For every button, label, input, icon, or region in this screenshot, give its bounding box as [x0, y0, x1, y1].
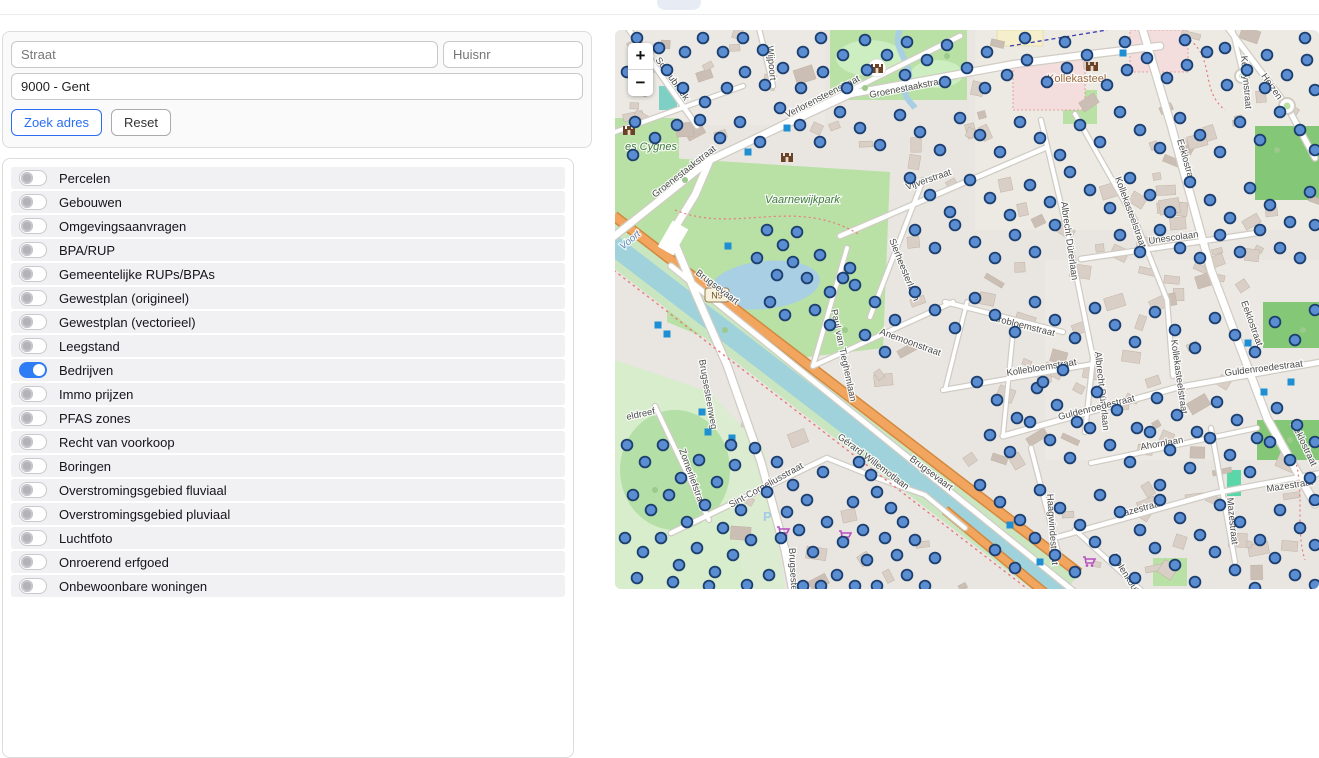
company-marker[interactable] [1245, 183, 1256, 194]
company-marker[interactable] [662, 65, 673, 76]
company-marker[interactable] [1275, 243, 1286, 254]
company-marker[interactable] [1295, 523, 1306, 534]
layer-toggle-percelen[interactable] [19, 170, 47, 186]
company-marker[interactable] [1285, 217, 1296, 228]
company-marker[interactable] [776, 533, 787, 544]
company-marker[interactable] [910, 287, 921, 298]
company-marker[interactable] [930, 243, 941, 254]
company-marker[interactable] [930, 553, 941, 564]
company-marker[interactable] [1050, 220, 1061, 231]
company-marker[interactable] [668, 577, 679, 588]
company-marker[interactable] [1070, 567, 1081, 578]
company-marker[interactable] [1142, 53, 1153, 64]
company-marker[interactable] [628, 490, 639, 501]
company-marker[interactable] [1152, 393, 1163, 404]
company-marker[interactable] [902, 37, 913, 48]
company-marker[interactable] [695, 115, 706, 126]
company-marker[interactable] [1072, 417, 1083, 428]
company-marker[interactable] [1130, 573, 1141, 584]
company-marker[interactable] [1302, 55, 1313, 66]
company-marker[interactable] [1035, 133, 1046, 144]
company-marker[interactable] [816, 581, 827, 589]
company-marker[interactable] [638, 547, 649, 558]
company-marker[interactable] [1310, 85, 1319, 96]
layer-toggle-gemeentelijke-rups-bpas[interactable] [19, 266, 47, 282]
company-marker[interactable] [1230, 330, 1241, 341]
company-marker[interactable] [718, 523, 729, 534]
map-node-square[interactable] [664, 331, 671, 338]
map-node-square[interactable] [1007, 522, 1014, 529]
layer-toggle-recht-van-voorkoop[interactable] [19, 434, 47, 450]
company-marker[interactable] [825, 320, 836, 331]
company-marker[interactable] [862, 65, 873, 76]
company-marker[interactable] [1050, 550, 1061, 561]
company-marker[interactable] [1150, 543, 1161, 554]
company-marker[interactable] [1020, 33, 1031, 44]
company-marker[interactable] [858, 525, 869, 536]
company-marker[interactable] [1025, 180, 1036, 191]
company-marker[interactable] [772, 270, 783, 281]
map-canvas[interactable]: N9GroenestaakstraatGroenestaakstraatVerl… [615, 30, 1319, 589]
company-marker[interactable] [910, 535, 921, 546]
company-marker[interactable] [902, 570, 913, 581]
company-marker[interactable] [880, 533, 891, 544]
company-marker[interactable] [1305, 473, 1316, 484]
company-marker[interactable] [1115, 107, 1126, 118]
company-marker[interactable] [970, 293, 981, 304]
company-marker[interactable] [764, 570, 775, 581]
company-marker[interactable] [726, 440, 737, 451]
company-marker[interactable] [646, 505, 657, 516]
company-marker[interactable] [1165, 445, 1176, 456]
company-marker[interactable] [682, 517, 693, 528]
company-marker[interactable] [1180, 35, 1191, 46]
company-marker[interactable] [676, 473, 687, 484]
layer-toggle-overstromingsgebied-pluviaal[interactable] [19, 506, 47, 522]
company-marker[interactable] [758, 45, 769, 56]
company-marker[interactable] [990, 253, 1001, 264]
company-marker[interactable] [838, 50, 849, 61]
company-marker[interactable] [1065, 167, 1076, 178]
company-marker[interactable] [808, 547, 819, 558]
company-marker[interactable] [818, 467, 829, 478]
company-marker[interactable] [1290, 335, 1301, 346]
company-marker[interactable] [892, 550, 903, 561]
company-marker[interactable] [1082, 50, 1093, 61]
company-marker[interactable] [656, 533, 667, 544]
company-marker[interactable] [1235, 117, 1246, 128]
company-marker[interactable] [1125, 173, 1136, 184]
company-marker[interactable] [1170, 325, 1181, 336]
company-marker[interactable] [1310, 580, 1319, 589]
company-marker[interactable] [1255, 535, 1266, 546]
company-marker[interactable] [1300, 33, 1311, 44]
street-input[interactable] [11, 41, 438, 68]
zoom-in-button[interactable]: + [628, 43, 653, 70]
company-marker[interactable] [798, 581, 809, 589]
company-marker[interactable] [742, 580, 753, 589]
map-node-square[interactable] [1288, 379, 1295, 386]
company-marker[interactable] [780, 310, 791, 321]
company-marker[interactable] [1252, 433, 1263, 444]
company-marker[interactable] [628, 150, 639, 161]
company-marker[interactable] [1222, 80, 1233, 91]
company-marker[interactable] [995, 147, 1006, 158]
company-marker[interactable] [905, 173, 916, 184]
company-marker[interactable] [1310, 305, 1319, 316]
company-marker[interactable] [890, 315, 901, 326]
company-marker[interactable] [678, 83, 689, 94]
company-marker[interactable] [1195, 530, 1206, 541]
company-marker[interactable] [1172, 410, 1183, 421]
company-marker[interactable] [1182, 60, 1193, 71]
layer-toggle-bedrijven[interactable] [19, 362, 47, 378]
company-marker[interactable] [728, 550, 739, 561]
company-marker[interactable] [740, 67, 751, 78]
layer-toggle-gebouwen[interactable] [19, 194, 47, 210]
layer-toggle-boringen[interactable] [19, 458, 47, 474]
company-marker[interactable] [1090, 303, 1101, 314]
company-marker[interactable] [1192, 427, 1203, 438]
company-marker[interactable] [1135, 125, 1146, 136]
map-node-square[interactable] [784, 125, 791, 132]
company-marker[interactable] [965, 175, 976, 186]
company-marker[interactable] [866, 470, 877, 481]
company-marker[interactable] [640, 457, 651, 468]
company-marker[interactable] [620, 533, 631, 544]
company-marker[interactable] [1165, 207, 1176, 218]
company-marker[interactable] [1212, 397, 1223, 408]
company-marker[interactable] [1115, 507, 1126, 518]
company-marker[interactable] [1120, 37, 1131, 48]
company-marker[interactable] [1110, 320, 1121, 331]
company-marker[interactable] [882, 50, 893, 61]
company-marker[interactable] [1202, 47, 1213, 58]
company-marker[interactable] [658, 440, 669, 451]
company-marker[interactable] [1055, 503, 1066, 514]
layer-toggle-pfas-zones[interactable] [19, 410, 47, 426]
company-marker[interactable] [860, 330, 871, 341]
company-marker[interactable] [692, 543, 703, 554]
company-marker[interactable] [1030, 247, 1041, 258]
company-marker[interactable] [1010, 563, 1021, 574]
map-node-square[interactable] [1261, 389, 1268, 396]
company-marker[interactable] [1185, 463, 1196, 474]
company-marker[interactable] [1055, 150, 1066, 161]
company-marker[interactable] [855, 123, 866, 134]
company-marker[interactable] [1272, 403, 1283, 414]
company-marker[interactable] [1235, 247, 1246, 258]
company-marker[interactable] [1155, 143, 1166, 154]
company-marker[interactable] [842, 83, 853, 94]
company-marker[interactable] [632, 33, 643, 44]
company-marker[interactable] [1310, 437, 1319, 448]
company-marker[interactable] [920, 581, 931, 589]
company-marker[interactable] [762, 487, 773, 498]
company-marker[interactable] [802, 273, 813, 284]
company-marker[interactable] [1170, 560, 1181, 571]
company-marker[interactable] [875, 140, 886, 151]
city-input[interactable] [11, 73, 583, 100]
layer-toggle-bpa-rup[interactable] [19, 242, 47, 258]
company-marker[interactable] [1052, 400, 1063, 411]
company-marker[interactable] [1065, 453, 1076, 464]
company-marker[interactable] [1235, 517, 1246, 528]
company-marker[interactable] [935, 145, 946, 156]
company-marker[interactable] [798, 47, 809, 58]
company-marker[interactable] [1175, 513, 1186, 524]
company-marker[interactable] [1290, 570, 1301, 581]
company-marker[interactable] [700, 97, 711, 108]
company-marker[interactable] [1085, 423, 1096, 434]
company-marker[interactable] [1058, 365, 1069, 376]
company-marker[interactable] [760, 80, 771, 91]
company-marker[interactable] [854, 457, 865, 468]
company-marker[interactable] [1132, 423, 1143, 434]
company-marker[interactable] [1270, 553, 1281, 564]
company-marker[interactable] [990, 310, 1001, 321]
company-marker[interactable] [848, 497, 859, 508]
company-marker[interactable] [762, 225, 773, 236]
company-marker[interactable] [910, 225, 921, 236]
company-marker[interactable] [1275, 107, 1286, 118]
company-marker[interactable] [872, 487, 883, 498]
company-marker[interactable] [1310, 145, 1319, 156]
company-marker[interactable] [1012, 413, 1023, 424]
company-marker[interactable] [1175, 243, 1186, 254]
company-marker[interactable] [1232, 415, 1243, 426]
company-marker[interactable] [1215, 230, 1226, 241]
house-number-input[interactable] [443, 41, 583, 68]
company-marker[interactable] [1305, 187, 1316, 198]
company-marker[interactable] [886, 503, 897, 514]
company-marker[interactable] [1210, 547, 1221, 558]
company-marker[interactable] [1005, 210, 1016, 221]
company-marker[interactable] [1155, 225, 1166, 236]
company-marker[interactable] [788, 480, 799, 491]
company-marker[interactable] [1270, 317, 1281, 328]
company-marker[interactable] [1050, 315, 1061, 326]
company-marker[interactable] [1310, 220, 1319, 231]
company-marker[interactable] [1110, 555, 1121, 566]
company-marker[interactable] [1062, 63, 1073, 74]
company-marker[interactable] [1155, 480, 1166, 491]
company-marker[interactable] [1175, 113, 1186, 124]
company-marker[interactable] [1195, 130, 1206, 141]
search-address-button[interactable]: Zoek adres [11, 109, 102, 136]
company-marker[interactable] [738, 33, 749, 44]
company-marker[interactable] [995, 497, 1006, 508]
company-marker[interactable] [940, 77, 951, 88]
company-marker[interactable] [870, 297, 881, 308]
map-node-square[interactable] [1120, 50, 1127, 57]
company-marker[interactable] [1255, 135, 1266, 146]
zoom-out-button[interactable]: − [628, 70, 653, 96]
company-marker[interactable] [782, 507, 793, 518]
company-marker[interactable] [775, 103, 786, 114]
company-marker[interactable] [1045, 435, 1056, 446]
company-marker[interactable] [700, 500, 711, 511]
reset-button[interactable]: Reset [111, 109, 171, 136]
company-marker[interactable] [1038, 377, 1049, 388]
company-marker[interactable] [1310, 540, 1319, 551]
company-marker[interactable] [1150, 307, 1161, 318]
company-marker[interactable] [736, 505, 747, 516]
company-marker[interactable] [1092, 387, 1103, 398]
company-marker[interactable] [838, 537, 849, 548]
company-marker[interactable] [1015, 117, 1026, 128]
company-marker[interactable] [1205, 433, 1216, 444]
company-marker[interactable] [1145, 427, 1156, 438]
company-marker[interactable] [970, 237, 981, 248]
company-marker[interactable] [862, 555, 873, 566]
company-marker[interactable] [980, 83, 991, 94]
company-marker[interactable] [975, 130, 986, 141]
company-marker[interactable] [942, 40, 953, 51]
layer-toggle-onroerend-erfgoed[interactable] [19, 554, 47, 570]
company-marker[interactable] [1130, 337, 1141, 348]
company-marker[interactable] [750, 443, 761, 454]
company-marker[interactable] [950, 323, 961, 334]
company-marker[interactable] [664, 490, 675, 501]
company-marker[interactable] [972, 377, 983, 388]
company-marker[interactable] [985, 430, 996, 441]
company-marker[interactable] [1075, 120, 1086, 131]
company-marker[interactable] [818, 67, 829, 78]
company-marker[interactable] [1265, 437, 1276, 448]
company-marker[interactable] [1245, 467, 1256, 478]
company-marker[interactable] [1162, 73, 1173, 84]
company-marker[interactable] [752, 253, 763, 264]
company-marker[interactable] [755, 137, 766, 148]
company-marker[interactable] [1085, 185, 1096, 196]
company-marker[interactable] [925, 190, 936, 201]
company-marker[interactable] [1022, 55, 1033, 66]
company-marker[interactable] [1285, 455, 1296, 466]
company-marker[interactable] [746, 535, 757, 546]
company-marker[interactable] [1015, 515, 1026, 526]
company-marker[interactable] [1125, 457, 1136, 468]
company-marker[interactable] [788, 257, 799, 268]
company-marker[interactable] [845, 263, 856, 274]
company-marker[interactable] [990, 545, 1001, 556]
company-marker[interactable] [975, 480, 986, 491]
company-marker[interactable] [765, 297, 776, 308]
company-marker[interactable] [654, 43, 665, 54]
company-marker[interactable] [1122, 65, 1133, 76]
map-node-square[interactable] [655, 322, 662, 329]
company-marker[interactable] [860, 35, 871, 46]
company-marker[interactable] [1230, 565, 1241, 576]
company-marker[interactable] [1282, 70, 1293, 81]
company-marker[interactable] [922, 55, 933, 66]
company-marker[interactable] [778, 240, 789, 251]
company-marker[interactable] [1295, 125, 1306, 136]
layer-toggle-gewestplan-origineel[interactable] [19, 290, 47, 306]
company-marker[interactable] [1105, 203, 1116, 214]
panel-collapse-handle[interactable] [657, 0, 701, 10]
layer-toggle-immo-prijzen[interactable] [19, 386, 47, 402]
company-marker[interactable] [898, 517, 909, 528]
company-marker[interactable] [900, 70, 911, 81]
company-marker[interactable] [1060, 37, 1071, 48]
company-marker[interactable] [1225, 213, 1236, 224]
company-marker[interactable] [815, 250, 826, 261]
company-marker[interactable] [822, 517, 833, 528]
company-marker[interactable] [1155, 495, 1166, 506]
company-marker[interactable] [1190, 577, 1201, 588]
company-marker[interactable] [1030, 533, 1041, 544]
company-marker[interactable] [1295, 253, 1306, 264]
company-marker[interactable] [1215, 147, 1226, 158]
company-marker[interactable] [632, 573, 643, 584]
company-marker[interactable] [825, 287, 836, 298]
company-marker[interactable] [838, 273, 849, 284]
company-marker[interactable] [1070, 333, 1081, 344]
company-marker[interactable] [1205, 195, 1216, 206]
map-node-square[interactable] [725, 243, 732, 250]
map-node-square[interactable] [1245, 340, 1252, 347]
company-marker[interactable] [796, 83, 807, 94]
company-marker[interactable] [850, 581, 861, 589]
map-node-square[interactable] [705, 429, 712, 436]
company-marker[interactable] [1195, 253, 1206, 264]
company-marker[interactable] [945, 207, 956, 218]
company-marker[interactable] [1310, 495, 1319, 506]
company-marker[interactable] [1210, 313, 1221, 324]
company-marker[interactable] [1292, 420, 1303, 431]
company-marker[interactable] [1260, 83, 1271, 94]
company-marker[interactable] [704, 581, 715, 589]
map-node-square[interactable] [699, 409, 706, 416]
company-marker[interactable] [718, 47, 729, 58]
company-marker[interactable] [1010, 327, 1021, 338]
company-marker[interactable] [1115, 230, 1126, 241]
map-node-square[interactable] [745, 149, 752, 156]
map-node-square[interactable] [1037, 559, 1044, 566]
company-marker[interactable] [1075, 520, 1086, 531]
company-marker[interactable] [792, 227, 803, 238]
company-marker[interactable] [1090, 537, 1101, 548]
company-marker[interactable] [1265, 200, 1276, 211]
company-marker[interactable] [772, 457, 783, 468]
company-marker[interactable] [1102, 80, 1113, 91]
company-marker[interactable] [832, 570, 843, 581]
company-marker[interactable] [698, 33, 709, 44]
company-marker[interactable] [735, 117, 746, 128]
company-marker[interactable] [1025, 417, 1036, 428]
company-marker[interactable] [680, 47, 691, 58]
company-marker[interactable] [872, 581, 883, 589]
company-marker[interactable] [1112, 405, 1123, 416]
company-marker[interactable] [1220, 43, 1231, 54]
company-marker[interactable] [1145, 190, 1156, 201]
company-marker[interactable] [730, 460, 741, 471]
company-marker[interactable] [715, 133, 726, 144]
company-marker[interactable] [674, 560, 685, 571]
company-marker[interactable] [895, 110, 906, 121]
company-marker[interactable] [778, 63, 789, 74]
layer-toggle-luchtfoto[interactable] [19, 530, 47, 546]
company-marker[interactable] [1010, 230, 1021, 241]
company-marker[interactable] [930, 305, 941, 316]
layer-toggle-leegstand[interactable] [19, 338, 47, 354]
company-marker[interactable] [722, 83, 733, 94]
layer-toggle-omgevingsaanvragen[interactable] [19, 218, 47, 234]
company-marker[interactable] [1190, 343, 1201, 354]
company-marker[interactable] [915, 127, 926, 138]
company-marker[interactable] [1185, 177, 1196, 188]
